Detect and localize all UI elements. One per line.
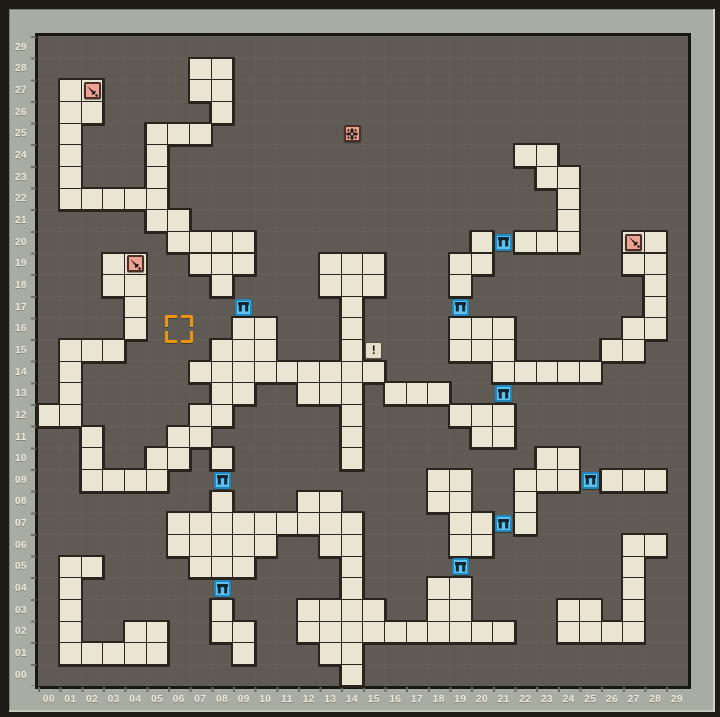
floor-cell-27-15[interactable] <box>623 340 644 361</box>
floor-cell-8-13[interactable] <box>212 383 233 404</box>
floor-cell-24-14[interactable] <box>558 362 579 383</box>
col-label-04: 04 <box>124 694 146 705</box>
col-label-28: 28 <box>644 694 666 705</box>
floor-cell-8-18[interactable] <box>212 275 233 296</box>
floor-cell-14-2[interactable] <box>342 622 363 643</box>
floor-cell-9-14[interactable] <box>233 362 254 383</box>
floor-cell-19-19[interactable] <box>450 254 471 275</box>
floor-cell-22-20[interactable] <box>515 232 536 253</box>
floor-cell-20-15[interactable] <box>472 340 493 361</box>
floor-cell-28-18[interactable] <box>645 275 666 296</box>
floor-cell-14-15[interactable] <box>342 340 363 361</box>
floor-cell-4-9[interactable] <box>125 470 146 491</box>
floor-cell-1-5[interactable] <box>60 557 81 578</box>
col-label-19: 19 <box>449 694 471 705</box>
floor-cell-23-9[interactable] <box>537 470 558 491</box>
floor-cell-14-11[interactable] <box>342 427 363 448</box>
floor-cell-27-19[interactable] <box>623 254 644 275</box>
row-label-16: 16 <box>10 323 32 334</box>
floor-cell-27-16[interactable] <box>623 318 644 339</box>
col-label-17: 17 <box>406 694 428 705</box>
floor-cell-13-2[interactable] <box>320 622 341 643</box>
floor-cell-1-22[interactable] <box>60 189 81 210</box>
floor-cell-5-21[interactable] <box>147 210 168 231</box>
floor-cell-14-6[interactable] <box>342 535 363 556</box>
floor-cell-28-9[interactable] <box>645 470 666 491</box>
floor-cell-1-2[interactable] <box>60 622 81 643</box>
door-icon[interactable] <box>495 234 512 251</box>
floor-cell-24-10[interactable] <box>558 448 579 469</box>
row-label-12: 12 <box>10 410 32 421</box>
row-label-21: 21 <box>10 215 32 226</box>
door-icon[interactable] <box>235 299 252 316</box>
floor-cell-21-16[interactable] <box>493 318 514 339</box>
floor-cell-27-6[interactable] <box>623 535 644 556</box>
floor-cell-14-19[interactable] <box>342 254 363 275</box>
floor-cell-1-1[interactable] <box>60 643 81 664</box>
floor-cell-14-18[interactable] <box>342 275 363 296</box>
floor-cell-28-6[interactable] <box>645 535 666 556</box>
floor-cell-14-17[interactable] <box>342 297 363 318</box>
col-label-29: 29 <box>666 694 688 705</box>
door-glyph <box>217 475 228 485</box>
floor-cell-25-2[interactable] <box>580 622 601 643</box>
floor-cell-19-2[interactable] <box>450 622 471 643</box>
floor-cell-23-23[interactable] <box>537 167 558 188</box>
floor-cell-8-10[interactable] <box>212 448 233 469</box>
floor-cell-20-11[interactable] <box>472 427 493 448</box>
floor-cell-18-3[interactable] <box>428 600 449 621</box>
floor-cell-27-4[interactable] <box>623 578 644 599</box>
row-label-10: 10 <box>10 453 32 464</box>
door-glyph <box>238 302 249 312</box>
floor-cell-8-3[interactable] <box>212 600 233 621</box>
floor-cell-14-1[interactable] <box>342 643 363 664</box>
floor-cell-10-16[interactable] <box>255 318 276 339</box>
floor-cell-21-12[interactable] <box>493 405 514 426</box>
floor-cell-4-2[interactable] <box>125 622 146 643</box>
floor-cell-12-7[interactable] <box>298 513 319 534</box>
floor-cell-8-27[interactable] <box>212 80 233 101</box>
col-label-25: 25 <box>579 694 601 705</box>
floor-cell-5-2[interactable] <box>147 622 168 643</box>
floor-cell-14-4[interactable] <box>342 578 363 599</box>
floor-cell-1-13[interactable] <box>60 383 81 404</box>
floor-cell-18-9[interactable] <box>428 470 449 491</box>
floor-cell-15-19[interactable] <box>363 254 384 275</box>
floor-cell-14-14[interactable] <box>342 362 363 383</box>
floor-cell-1-12[interactable] <box>60 405 81 426</box>
floor-cell-19-15[interactable] <box>450 340 471 361</box>
sword-icon[interactable] <box>127 255 144 272</box>
row-label-09: 09 <box>10 475 32 486</box>
floor-cell-24-21[interactable] <box>558 210 579 231</box>
floor-cell-1-3[interactable] <box>60 600 81 621</box>
door-glyph <box>455 302 466 312</box>
floor-cell-23-24[interactable] <box>537 145 558 166</box>
row-label-00: 00 <box>10 670 32 681</box>
floor-cell-28-17[interactable] <box>645 297 666 318</box>
floor-cell-13-14[interactable] <box>320 362 341 383</box>
floor-cell-13-13[interactable] <box>320 383 341 404</box>
floor-cell-4-16[interactable] <box>125 318 146 339</box>
floor-cell-12-8[interactable] <box>298 492 319 513</box>
floor-cell-14-5[interactable] <box>342 557 363 578</box>
floor-cell-15-3[interactable] <box>363 600 384 621</box>
sword-icon[interactable] <box>625 234 642 251</box>
floor-cell-7-25[interactable] <box>190 124 211 145</box>
floor-cell-19-4[interactable] <box>450 578 471 599</box>
floor-cell-14-13[interactable] <box>342 383 363 404</box>
floor-cell-25-3[interactable] <box>580 600 601 621</box>
floor-cell-13-19[interactable] <box>320 254 341 275</box>
col-label-02: 02 <box>81 694 103 705</box>
col-label-00: 00 <box>38 694 60 705</box>
floor-cell-7-20[interactable] <box>190 232 211 253</box>
floor-cell-14-16[interactable] <box>342 318 363 339</box>
floor-cell-10-15[interactable] <box>255 340 276 361</box>
floor-cell-11-7[interactable] <box>277 513 298 534</box>
floor-cell-5-1[interactable] <box>147 643 168 664</box>
floor-cell-13-8[interactable] <box>320 492 341 513</box>
floor-cell-9-5[interactable] <box>233 557 254 578</box>
floor-cell-26-9[interactable] <box>602 470 623 491</box>
floor-cell-6-21[interactable] <box>168 210 189 231</box>
floor-cell-2-15[interactable] <box>82 340 103 361</box>
floor-cell-19-3[interactable] <box>450 600 471 621</box>
floor-cell-28-16[interactable] <box>645 318 666 339</box>
floor-cell-17-13[interactable] <box>407 383 428 404</box>
floor-cell-8-5[interactable] <box>212 557 233 578</box>
floor-cell-27-9[interactable] <box>623 470 644 491</box>
trap-icon[interactable] <box>344 125 361 142</box>
marker-corner <box>181 331 193 343</box>
floor-cell-3-9[interactable] <box>103 470 124 491</box>
floor-cell-8-15[interactable] <box>212 340 233 361</box>
sword-glyph <box>628 236 640 248</box>
floor-cell-10-7[interactable] <box>255 513 276 534</box>
floor-cell-4-22[interactable] <box>125 189 146 210</box>
col-label-12: 12 <box>298 694 320 705</box>
floor-cell-7-6[interactable] <box>190 535 211 556</box>
col-label-09: 09 <box>233 694 255 705</box>
floor-cell-7-14[interactable] <box>190 362 211 383</box>
floor-cell-16-2[interactable] <box>385 622 406 643</box>
door-icon[interactable] <box>495 515 512 532</box>
floor-cell-23-14[interactable] <box>537 362 558 383</box>
floor-cell-14-10[interactable] <box>342 448 363 469</box>
floor-cell-15-14[interactable] <box>363 362 384 383</box>
col-label-23: 23 <box>536 694 558 705</box>
floor-cell-7-19[interactable] <box>190 254 211 275</box>
floor-cell-4-17[interactable] <box>125 297 146 318</box>
floor-cell-1-25[interactable] <box>60 124 81 145</box>
floor-cell-7-7[interactable] <box>190 513 211 534</box>
row-label-26: 26 <box>10 107 32 118</box>
col-label-16: 16 <box>384 694 406 705</box>
floor-cell-12-14[interactable] <box>298 362 319 383</box>
floor-cell-8-7[interactable] <box>212 513 233 534</box>
door-glyph <box>217 584 228 594</box>
floor-cell-6-6[interactable] <box>168 535 189 556</box>
floor-cell-12-3[interactable] <box>298 600 319 621</box>
floor-cell-21-14[interactable] <box>493 362 514 383</box>
floor-cell-26-15[interactable] <box>602 340 623 361</box>
floor-cell-9-2[interactable] <box>233 622 254 643</box>
row-label-24: 24 <box>10 150 32 161</box>
floor-cell-24-9[interactable] <box>558 470 579 491</box>
door-glyph <box>455 562 466 572</box>
floor-cell-1-14[interactable] <box>60 362 81 383</box>
floor-cell-3-19[interactable] <box>103 254 124 275</box>
floor-cell-7-28[interactable] <box>190 59 211 80</box>
floor-cell-20-2[interactable] <box>472 622 493 643</box>
floor-cell-8-8[interactable] <box>212 492 233 513</box>
row-label-06: 06 <box>10 540 32 551</box>
door-icon[interactable] <box>214 472 231 489</box>
floor-cell-6-11[interactable] <box>168 427 189 448</box>
floor-cell-1-4[interactable] <box>60 578 81 599</box>
floor-cell-20-6[interactable] <box>472 535 493 556</box>
position-marker[interactable] <box>165 315 193 343</box>
door-icon[interactable] <box>452 299 469 316</box>
col-label-03: 03 <box>103 694 125 705</box>
floor-cell-7-12[interactable] <box>190 405 211 426</box>
door-icon[interactable] <box>214 580 231 597</box>
floor-cell-2-22[interactable] <box>82 189 103 210</box>
floor-cell-1-26[interactable] <box>60 102 81 123</box>
floor-cell-17-2[interactable] <box>407 622 428 643</box>
floor-cell-5-9[interactable] <box>147 470 168 491</box>
floor-cell-20-16[interactable] <box>472 318 493 339</box>
col-label-26: 26 <box>601 694 623 705</box>
floor-cell-16-13[interactable] <box>385 383 406 404</box>
col-label-15: 15 <box>363 694 385 705</box>
floor-cell-10-6[interactable] <box>255 535 276 556</box>
floor-cell-15-2[interactable] <box>363 622 384 643</box>
floor-cell-28-19[interactable] <box>645 254 666 275</box>
floor-cell-9-16[interactable] <box>233 318 254 339</box>
floor-cell-8-2[interactable] <box>212 622 233 643</box>
floor-cell-9-1[interactable] <box>233 643 254 664</box>
floor-cell-15-18[interactable] <box>363 275 384 296</box>
sword-icon[interactable] <box>84 82 101 99</box>
floor-cell-20-7[interactable] <box>472 513 493 534</box>
floor-cell-5-23[interactable] <box>147 167 168 188</box>
floor-cell-14-3[interactable] <box>342 600 363 621</box>
door-glyph <box>585 475 596 485</box>
row-label-14: 14 <box>10 367 32 378</box>
row-label-03: 03 <box>10 605 32 616</box>
floor-cell-7-11[interactable] <box>190 427 211 448</box>
floor-cell-19-18[interactable] <box>450 275 471 296</box>
floor-cell-13-7[interactable] <box>320 513 341 534</box>
floor-cell-4-1[interactable] <box>125 643 146 664</box>
col-label-08: 08 <box>211 694 233 705</box>
floor-cell-9-7[interactable] <box>233 513 254 534</box>
row-label-25: 25 <box>10 128 32 139</box>
floor-cell-9-20[interactable] <box>233 232 254 253</box>
floor-cell-21-11[interactable] <box>493 427 514 448</box>
floor-cell-0-12[interactable] <box>39 405 60 426</box>
floor-cell-3-18[interactable] <box>103 275 124 296</box>
floor-cell-5-24[interactable] <box>147 145 168 166</box>
floor-cell-24-22[interactable] <box>558 189 579 210</box>
floor-cell-8-12[interactable] <box>212 405 233 426</box>
floor-cell-2-10[interactable] <box>82 448 103 469</box>
floor-cell-22-14[interactable] <box>515 362 536 383</box>
floor-cell-18-8[interactable] <box>428 492 449 513</box>
floor-cell-25-14[interactable] <box>580 362 601 383</box>
floor-cell-3-15[interactable] <box>103 340 124 361</box>
row-label-17: 17 <box>10 302 32 313</box>
row-label-29: 29 <box>10 42 32 53</box>
door-glyph <box>498 237 509 247</box>
floor-cell-2-5[interactable] <box>82 557 103 578</box>
floor-cell-9-15[interactable] <box>233 340 254 361</box>
floor-cell-8-20[interactable] <box>212 232 233 253</box>
floor-cell-18-4[interactable] <box>428 578 449 599</box>
row-label-18: 18 <box>10 280 32 291</box>
row-label-05: 05 <box>10 561 32 572</box>
floor-cell-3-22[interactable] <box>103 189 124 210</box>
floor-cell-24-2[interactable] <box>558 622 579 643</box>
floor-cell-4-18[interactable] <box>125 275 146 296</box>
floor-cell-1-23[interactable] <box>60 167 81 188</box>
floor-cell-13-1[interactable] <box>320 643 341 664</box>
floor-cell-18-2[interactable] <box>428 622 449 643</box>
floor-cell-27-5[interactable] <box>623 557 644 578</box>
door-glyph <box>498 519 509 529</box>
floor-cell-20-12[interactable] <box>472 405 493 426</box>
floor-cell-13-6[interactable] <box>320 535 341 556</box>
row-label-27: 27 <box>10 85 32 96</box>
trap-glyph <box>346 128 358 140</box>
row-label-04: 04 <box>10 583 32 594</box>
floor-cell-9-19[interactable] <box>233 254 254 275</box>
floor-cell-23-10[interactable] <box>537 448 558 469</box>
floor-cell-13-18[interactable] <box>320 275 341 296</box>
col-label-27: 27 <box>623 694 645 705</box>
floor-cell-23-20[interactable] <box>537 232 558 253</box>
floor-cell-3-1[interactable] <box>103 643 124 664</box>
floor-cell-8-19[interactable] <box>212 254 233 275</box>
floor-cell-2-9[interactable] <box>82 470 103 491</box>
col-label-22: 22 <box>514 694 536 705</box>
row-label-28: 28 <box>10 63 32 74</box>
floor-cell-27-2[interactable] <box>623 622 644 643</box>
floor-cell-1-24[interactable] <box>60 145 81 166</box>
floor-cell-14-12[interactable] <box>342 405 363 426</box>
floor-cell-2-26[interactable] <box>82 102 103 123</box>
floor-cell-7-5[interactable] <box>190 557 211 578</box>
floor-cell-22-24[interactable] <box>515 145 536 166</box>
floor-cell-6-7[interactable] <box>168 513 189 534</box>
floor-cell-14-7[interactable] <box>342 513 363 534</box>
floor-cell-12-2[interactable] <box>298 622 319 643</box>
row-label-15: 15 <box>10 345 32 356</box>
floor-cell-19-7[interactable] <box>450 513 471 534</box>
row-label-02: 02 <box>10 626 32 637</box>
floor-cell-11-14[interactable] <box>277 362 298 383</box>
row-label-07: 07 <box>10 518 32 529</box>
floor-cell-26-2[interactable] <box>602 622 623 643</box>
floor-cell-19-12[interactable] <box>450 405 471 426</box>
floor-cell-6-25[interactable] <box>168 124 189 145</box>
floor-cell-24-23[interactable] <box>558 167 579 188</box>
door-icon[interactable] <box>452 558 469 575</box>
floor-cell-22-9[interactable] <box>515 470 536 491</box>
floor-cell-28-20[interactable] <box>645 232 666 253</box>
floor-cell-24-3[interactable] <box>558 600 579 621</box>
door-icon[interactable] <box>495 385 512 402</box>
floor-cell-22-8[interactable] <box>515 492 536 513</box>
floor-cell-14-0[interactable] <box>342 665 363 686</box>
col-label-10: 10 <box>254 694 276 705</box>
floor-cell-9-13[interactable] <box>233 383 254 404</box>
floor-cell-18-13[interactable] <box>428 383 449 404</box>
floor-cell-7-27[interactable] <box>190 80 211 101</box>
door-glyph <box>498 389 509 399</box>
floor-cell-19-6[interactable] <box>450 535 471 556</box>
row-label-11: 11 <box>10 432 32 443</box>
floor-cell-8-14[interactable] <box>212 362 233 383</box>
floor-cell-10-14[interactable] <box>255 362 276 383</box>
floor-cell-13-3[interactable] <box>320 600 341 621</box>
floor-cell-27-3[interactable] <box>623 600 644 621</box>
floor-cell-5-25[interactable] <box>147 124 168 145</box>
col-label-18: 18 <box>428 694 450 705</box>
col-label-05: 05 <box>146 694 168 705</box>
sword-glyph <box>129 258 141 270</box>
floor-cell-5-10[interactable] <box>147 448 168 469</box>
floor-cell-21-15[interactable] <box>493 340 514 361</box>
row-label-23: 23 <box>10 172 32 183</box>
floor-cell-2-11[interactable] <box>82 427 103 448</box>
floor-cell-20-20[interactable] <box>472 232 493 253</box>
note-icon[interactable]: ! <box>365 342 382 359</box>
floor-cell-2-1[interactable] <box>82 643 103 664</box>
floor-cell-20-19[interactable] <box>472 254 493 275</box>
row-label-01: 01 <box>10 648 32 659</box>
row-label-19: 19 <box>10 258 32 269</box>
floor-cell-19-9[interactable] <box>450 470 471 491</box>
floor-cell-8-6[interactable] <box>212 535 233 556</box>
col-label-06: 06 <box>168 694 190 705</box>
marker-corner <box>181 315 193 327</box>
floor-cell-22-7[interactable] <box>515 513 536 534</box>
floor-cell-8-26[interactable] <box>212 102 233 123</box>
door-icon[interactable] <box>582 472 599 489</box>
floor-cell-5-22[interactable] <box>147 189 168 210</box>
floor-cell-1-15[interactable] <box>60 340 81 361</box>
col-label-01: 01 <box>59 694 81 705</box>
floor-cell-1-27[interactable] <box>60 80 81 101</box>
floor-cell-9-6[interactable] <box>233 535 254 556</box>
floor-cell-19-16[interactable] <box>450 318 471 339</box>
row-label-13: 13 <box>10 388 32 399</box>
floor-cell-12-13[interactable] <box>298 383 319 404</box>
floor-cell-6-10[interactable] <box>168 448 189 469</box>
floor-cell-24-20[interactable] <box>558 232 579 253</box>
floor-cell-6-20[interactable] <box>168 232 189 253</box>
floor-cell-19-8[interactable] <box>450 492 471 513</box>
floor-cell-21-2[interactable] <box>493 622 514 643</box>
col-label-14: 14 <box>341 694 363 705</box>
floor-cell-8-28[interactable] <box>212 59 233 80</box>
row-label-22: 22 <box>10 193 32 204</box>
row-label-08: 08 <box>10 496 32 507</box>
